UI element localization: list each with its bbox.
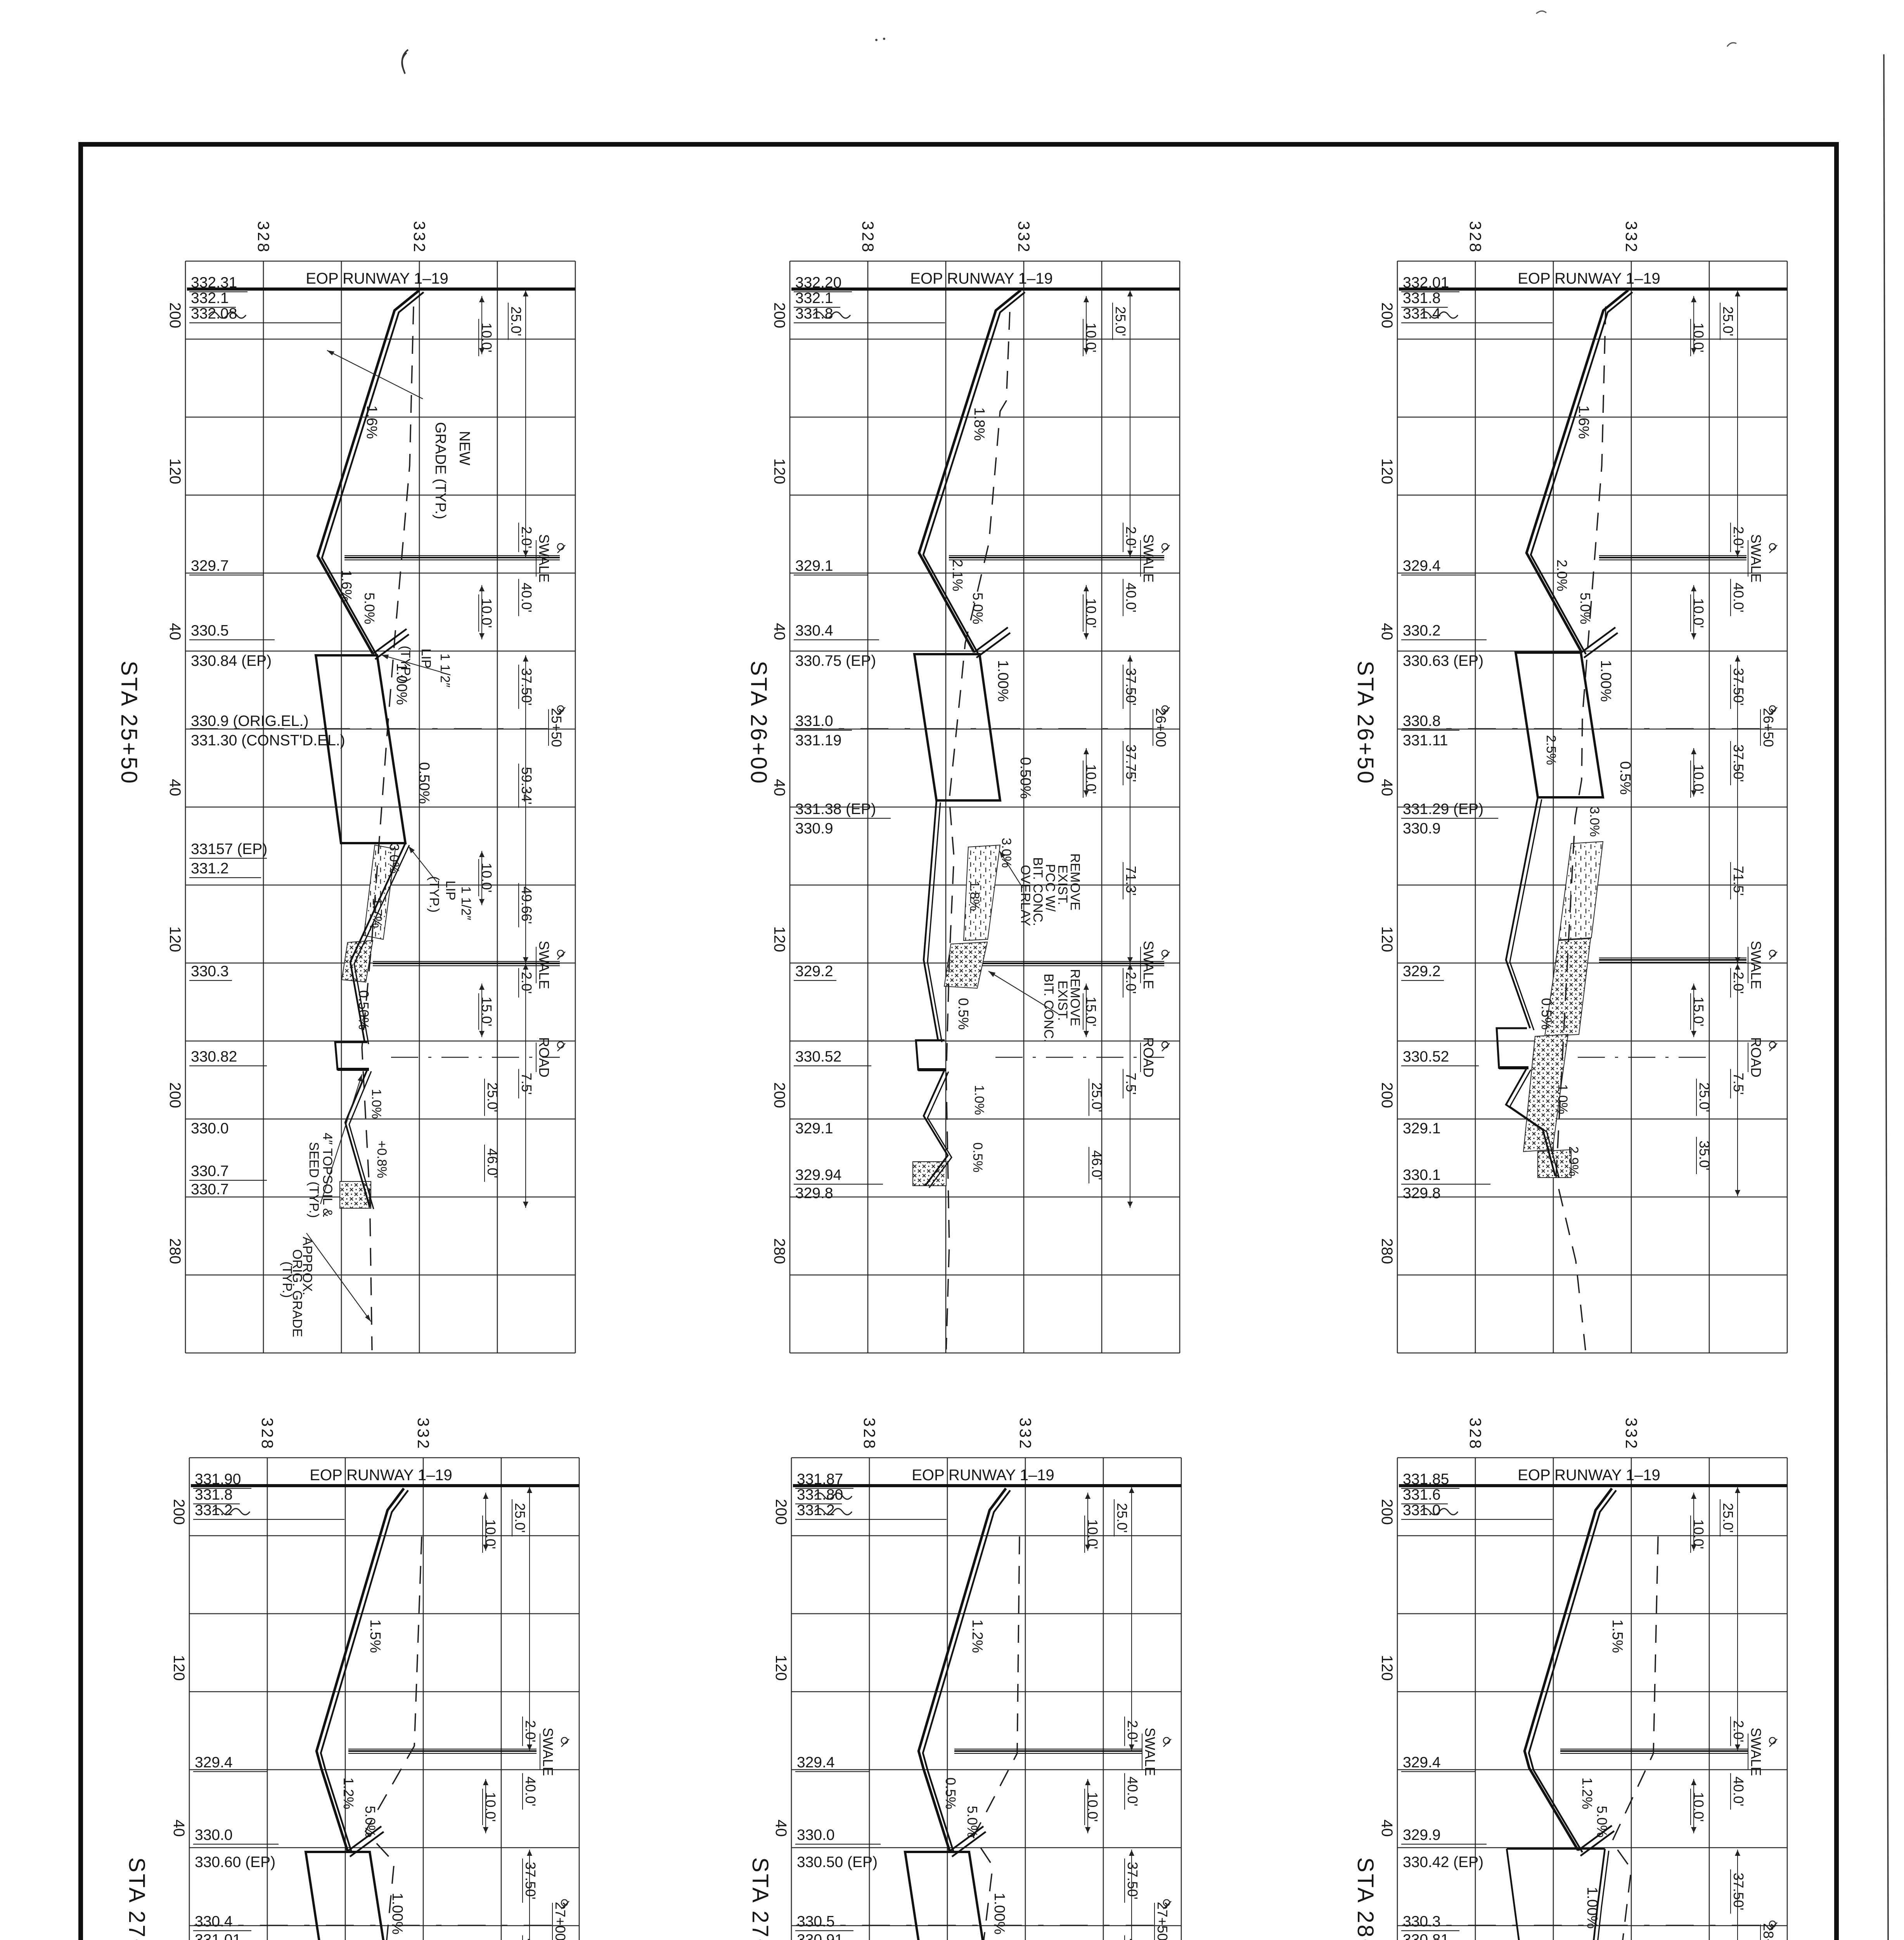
svg-text:330.7: 330.7 bbox=[191, 1181, 229, 1198]
svg-text:200: 200 bbox=[166, 302, 183, 328]
svg-text:200: 200 bbox=[771, 1082, 788, 1108]
svg-text:STA 26+50: STA 26+50 bbox=[1353, 661, 1378, 785]
svg-text:27+50: 27+50 bbox=[1155, 1902, 1170, 1940]
svg-text:331.30 (CONST'D.EL.): 331.30 (CONST'D.EL.) bbox=[191, 732, 345, 749]
svg-text:71.5': 71.5' bbox=[1731, 866, 1746, 896]
svg-text:330.50 (EP): 330.50 (EP) bbox=[797, 1854, 878, 1871]
svg-text:2.0%: 2.0% bbox=[1554, 559, 1570, 591]
svg-text:40.0': 40.0' bbox=[519, 583, 535, 613]
svg-text:46.0': 46.0' bbox=[1089, 1150, 1105, 1180]
svg-text:7.5': 7.5' bbox=[519, 1073, 535, 1095]
svg-text:0.5%: 0.5% bbox=[1539, 998, 1554, 1030]
svg-text:40: 40 bbox=[170, 1820, 187, 1837]
svg-text:2.0': 2.0' bbox=[1731, 1720, 1746, 1743]
svg-text:10.0': 10.0' bbox=[1691, 323, 1707, 353]
svg-text:25.0': 25.0' bbox=[1089, 1083, 1105, 1112]
svg-text:EOP RUNWAY 1–19: EOP RUNWAY 1–19 bbox=[1518, 1467, 1660, 1484]
svg-text:SWALE: SWALE bbox=[1141, 941, 1156, 989]
svg-text:0.5%: 0.5% bbox=[970, 1142, 985, 1173]
svg-text:5.0%: 5.0% bbox=[970, 592, 986, 624]
svg-text:330.4: 330.4 bbox=[795, 622, 833, 639]
svg-text:120: 120 bbox=[771, 458, 788, 484]
svg-text:328: 328 bbox=[860, 1417, 879, 1450]
svg-text:35.0': 35.0' bbox=[1696, 1141, 1712, 1171]
svg-text:1.7%: 1.7% bbox=[370, 898, 384, 928]
svg-text:280: 280 bbox=[166, 1238, 183, 1264]
svg-text:120: 120 bbox=[1378, 458, 1395, 484]
svg-text:332.01: 332.01 bbox=[1403, 274, 1449, 291]
svg-text:332: 332 bbox=[1622, 221, 1641, 254]
svg-text:331.90: 331.90 bbox=[195, 1471, 241, 1488]
svg-text:329.4: 329.4 bbox=[1403, 558, 1441, 574]
svg-text:EOP RUNWAY 1–19: EOP RUNWAY 1–19 bbox=[310, 1467, 452, 1484]
svg-text:40: 40 bbox=[166, 779, 183, 797]
svg-text:200: 200 bbox=[771, 302, 788, 328]
svg-text:25.0': 25.0' bbox=[1113, 307, 1129, 336]
svg-text:STA 25+50: STA 25+50 bbox=[116, 661, 142, 785]
svg-text:37.50': 37.50' bbox=[1731, 1873, 1746, 1911]
svg-text:25.0': 25.0' bbox=[1114, 1503, 1130, 1533]
svg-text:33157 (EP): 33157 (EP) bbox=[191, 841, 267, 857]
svg-text:330.3: 330.3 bbox=[1403, 1913, 1441, 1930]
svg-text:SWALE: SWALE bbox=[540, 1728, 556, 1776]
svg-text:EOP RUNWAY 1–19: EOP RUNWAY 1–19 bbox=[1518, 270, 1660, 287]
svg-text:120: 120 bbox=[771, 926, 788, 952]
svg-text:15.0': 15.0' bbox=[479, 997, 495, 1027]
svg-text:3.0%: 3.0% bbox=[387, 844, 402, 874]
svg-text:329.4: 329.4 bbox=[1403, 1754, 1441, 1771]
svg-text:200: 200 bbox=[1378, 1499, 1395, 1525]
svg-text:328: 328 bbox=[258, 1417, 277, 1450]
svg-text:(TYP.): (TYP.) bbox=[398, 646, 413, 682]
svg-text:331.38 (EP): 331.38 (EP) bbox=[795, 801, 876, 818]
svg-text:37.50': 37.50' bbox=[523, 1862, 538, 1900]
svg-text:120: 120 bbox=[1378, 926, 1395, 952]
svg-text:331.8: 331.8 bbox=[1403, 290, 1441, 307]
svg-text:329.1: 329.1 bbox=[795, 558, 833, 574]
svg-text:332.08: 332.08 bbox=[191, 305, 237, 322]
svg-text:37.50': 37.50' bbox=[1123, 668, 1139, 706]
svg-text:37.50': 37.50' bbox=[1731, 745, 1746, 782]
svg-text:2.0': 2.0' bbox=[1731, 972, 1746, 994]
svg-text:40.0': 40.0' bbox=[1123, 583, 1139, 613]
svg-text:1.00%: 1.00% bbox=[1584, 1887, 1600, 1929]
svg-text:10.0': 10.0' bbox=[1085, 1519, 1101, 1549]
svg-text:1.00%: 1.00% bbox=[389, 1893, 405, 1935]
svg-text:330.3: 330.3 bbox=[191, 963, 229, 980]
svg-text:10.0': 10.0' bbox=[1691, 1519, 1707, 1549]
svg-text:EXIST.: EXIST. bbox=[1055, 980, 1070, 1021]
svg-text:330.63 (EP): 330.63 (EP) bbox=[1403, 653, 1483, 669]
svg-text:STA 27+00: STA 27+00 bbox=[124, 1857, 149, 1940]
svg-text:1.6%: 1.6% bbox=[339, 570, 355, 602]
svg-text:40: 40 bbox=[771, 779, 788, 797]
svg-text:332: 332 bbox=[1015, 221, 1033, 254]
svg-text:EOP RUNWAY 1–19: EOP RUNWAY 1–19 bbox=[306, 270, 448, 287]
svg-text:40.05': 40.05' bbox=[523, 1939, 538, 1940]
svg-text:331.0: 331.0 bbox=[795, 713, 833, 729]
svg-text:332.1: 332.1 bbox=[795, 290, 833, 307]
svg-text:5.0%: 5.0% bbox=[362, 1806, 378, 1838]
svg-text:330.0: 330.0 bbox=[191, 1120, 229, 1137]
svg-text:331.8: 331.8 bbox=[195, 1486, 233, 1503]
svg-text:330.91: 330.91 bbox=[797, 1931, 843, 1940]
svg-text:330.81: 330.81 bbox=[1403, 1931, 1449, 1940]
svg-text:10.0': 10.0' bbox=[1085, 1792, 1101, 1822]
svg-text:329.4: 329.4 bbox=[195, 1754, 233, 1771]
svg-text:328: 328 bbox=[1466, 1417, 1485, 1450]
svg-text:10.0': 10.0' bbox=[1083, 323, 1099, 353]
svg-text:49.66': 49.66' bbox=[519, 887, 535, 924]
svg-text:25.0': 25.0' bbox=[512, 1503, 528, 1533]
svg-text:41.79': 41.79' bbox=[1125, 1939, 1141, 1940]
svg-text:ROAD: ROAD bbox=[1748, 1037, 1764, 1077]
svg-text:0.50%: 0.50% bbox=[1017, 757, 1033, 799]
svg-text:329.2: 329.2 bbox=[1403, 963, 1441, 980]
svg-text:37.50': 37.50' bbox=[1731, 668, 1746, 706]
svg-text:LIP: LIP bbox=[419, 648, 433, 668]
svg-text:1.2%: 1.2% bbox=[341, 1777, 357, 1809]
svg-text:2.0': 2.0' bbox=[1123, 527, 1139, 549]
svg-text:STA 27+50: STA 27+50 bbox=[748, 1857, 773, 1940]
svg-text:1.00%: 1.00% bbox=[995, 660, 1011, 702]
svg-text:1.0%: 1.0% bbox=[1555, 1084, 1570, 1114]
svg-text:332.20: 332.20 bbox=[795, 274, 841, 291]
svg-text:STA 28+00: STA 28+00 bbox=[1353, 1857, 1378, 1940]
svg-text:1.2%: 1.2% bbox=[969, 1620, 985, 1653]
svg-text:1.2%: 1.2% bbox=[1579, 1777, 1595, 1809]
svg-text:329.8: 329.8 bbox=[1403, 1185, 1441, 1202]
svg-text:25.0': 25.0' bbox=[1696, 1083, 1712, 1112]
svg-text:330.1: 330.1 bbox=[1403, 1167, 1441, 1183]
svg-text:332: 332 bbox=[1622, 1417, 1641, 1450]
svg-text:40.0': 40.0' bbox=[1731, 1777, 1746, 1807]
svg-text:329.94: 329.94 bbox=[795, 1167, 841, 1183]
svg-text:330.9: 330.9 bbox=[1403, 820, 1441, 837]
svg-text:200: 200 bbox=[166, 1082, 183, 1108]
svg-text:330.84 (EP): 330.84 (EP) bbox=[191, 653, 272, 669]
svg-text:0.5%: 0.5% bbox=[1617, 761, 1633, 795]
svg-text:10.0': 10.0' bbox=[1691, 1792, 1707, 1822]
svg-text:0.5%: 0.5% bbox=[955, 998, 971, 1030]
svg-text:329.2: 329.2 bbox=[795, 963, 833, 980]
svg-text:1.6%: 1.6% bbox=[1575, 405, 1592, 439]
svg-text:200: 200 bbox=[772, 1499, 789, 1525]
svg-text:25.0': 25.0' bbox=[485, 1083, 500, 1112]
svg-text:15.0': 15.0' bbox=[1691, 997, 1707, 1027]
svg-text:329.1: 329.1 bbox=[795, 1120, 833, 1137]
svg-text:40.0': 40.0' bbox=[523, 1777, 538, 1807]
svg-text:10.0': 10.0' bbox=[1691, 764, 1707, 794]
svg-text:2.0': 2.0' bbox=[1123, 972, 1139, 994]
svg-text:40: 40 bbox=[166, 623, 183, 641]
svg-text:2.0': 2.0' bbox=[1731, 527, 1746, 549]
svg-text:330.9 (ORIG.EL.): 330.9 (ORIG.EL.) bbox=[191, 713, 308, 729]
svg-text:328: 328 bbox=[254, 221, 273, 254]
svg-text:1.00%: 1.00% bbox=[1598, 660, 1614, 702]
svg-text:GRADE (TYP.): GRADE (TYP.) bbox=[432, 422, 448, 520]
svg-text:25.0': 25.0' bbox=[1720, 307, 1736, 336]
svg-text:330.52: 330.52 bbox=[795, 1048, 841, 1065]
svg-text:10.0': 10.0' bbox=[483, 1792, 499, 1822]
svg-text:EOP RUNWAY 1–19: EOP RUNWAY 1–19 bbox=[910, 270, 1053, 287]
svg-text:332: 332 bbox=[414, 1417, 433, 1450]
svg-text:1.0%: 1.0% bbox=[369, 1089, 384, 1119]
svg-text:71.3': 71.3' bbox=[1123, 866, 1139, 896]
svg-text:0.50%: 0.50% bbox=[416, 762, 432, 804]
svg-text:10.0': 10.0' bbox=[479, 598, 495, 628]
svg-text:2.0': 2.0' bbox=[523, 1720, 538, 1743]
svg-text:NEW: NEW bbox=[456, 431, 473, 466]
svg-text:5.0%: 5.0% bbox=[1577, 592, 1593, 624]
svg-text:3.0%: 3.0% bbox=[1587, 807, 1602, 837]
svg-text:330.0: 330.0 bbox=[797, 1827, 835, 1843]
svg-text:27+00: 27+00 bbox=[552, 1902, 568, 1940]
svg-text:25.0': 25.0' bbox=[508, 307, 524, 336]
svg-text:1 1/2″: 1 1/2″ bbox=[459, 886, 473, 920]
svg-text:330.82: 330.82 bbox=[191, 1048, 237, 1065]
svg-text:332.31: 332.31 bbox=[191, 274, 237, 291]
svg-text:40: 40 bbox=[772, 1820, 789, 1837]
svg-text:SWALE: SWALE bbox=[536, 941, 552, 989]
svg-text:200: 200 bbox=[1378, 302, 1395, 328]
svg-text:15.0': 15.0' bbox=[1083, 997, 1099, 1027]
svg-text:7.5': 7.5' bbox=[1731, 1073, 1746, 1095]
svg-text:2.5%: 2.5% bbox=[1544, 735, 1558, 765]
svg-text:120: 120 bbox=[166, 926, 183, 952]
svg-text:(TYP.): (TYP.) bbox=[280, 1261, 294, 1298]
svg-text:2.9%: 2.9% bbox=[1566, 1146, 1581, 1176]
svg-text:328: 328 bbox=[1466, 221, 1485, 254]
svg-text:4″ TOPSOIL &: 4″ TOPSOIL & bbox=[320, 1133, 335, 1217]
svg-text:330.42 (EP): 330.42 (EP) bbox=[1403, 1854, 1483, 1871]
svg-text:329.9: 329.9 bbox=[1403, 1827, 1441, 1843]
svg-text:40.0': 40.0' bbox=[1125, 1777, 1141, 1807]
svg-text:10.0': 10.0' bbox=[1691, 598, 1707, 628]
svg-text:SWALE: SWALE bbox=[1748, 941, 1764, 989]
svg-text:120: 120 bbox=[772, 1655, 789, 1681]
svg-text:LIP: LIP bbox=[443, 880, 458, 900]
svg-text:2.0': 2.0' bbox=[519, 972, 535, 994]
svg-text:37.50': 37.50' bbox=[1125, 1862, 1141, 1900]
svg-text:120: 120 bbox=[170, 1655, 187, 1681]
svg-text:1 1/2″: 1 1/2″ bbox=[438, 653, 452, 688]
svg-text:EOP RUNWAY 1–19: EOP RUNWAY 1–19 bbox=[912, 1467, 1054, 1484]
svg-text:331.11: 331.11 bbox=[1403, 732, 1448, 749]
svg-text:+0.8%: +0.8% bbox=[374, 1140, 389, 1178]
svg-text:200: 200 bbox=[1378, 1082, 1395, 1108]
svg-text:331.2: 331.2 bbox=[191, 860, 229, 877]
svg-text:330.9: 330.9 bbox=[795, 820, 833, 837]
svg-text:40: 40 bbox=[1378, 1820, 1395, 1837]
svg-text:40: 40 bbox=[1378, 779, 1395, 797]
svg-text:25.0': 25.0' bbox=[1720, 1503, 1736, 1533]
svg-text:OVERLAY: OVERLAY bbox=[1018, 865, 1033, 926]
svg-text:1.0%: 1.0% bbox=[972, 1085, 987, 1115]
svg-text:59.34': 59.34' bbox=[519, 767, 535, 805]
svg-text:2.0': 2.0' bbox=[1125, 1720, 1141, 1743]
svg-text:331.6: 331.6 bbox=[1403, 1486, 1441, 1503]
svg-text:SWALE: SWALE bbox=[1748, 534, 1764, 583]
svg-text:331.19: 331.19 bbox=[795, 732, 841, 749]
svg-text:329.8: 329.8 bbox=[795, 1185, 833, 1202]
svg-text:(TYP.): (TYP.) bbox=[427, 876, 441, 913]
svg-text:329.7: 329.7 bbox=[191, 558, 229, 574]
svg-text:330.4: 330.4 bbox=[195, 1913, 233, 1930]
svg-text:330.0: 330.0 bbox=[195, 1827, 233, 1843]
svg-text:1.6%: 1.6% bbox=[363, 405, 380, 439]
svg-text:1.5%: 1.5% bbox=[367, 1620, 383, 1653]
svg-text:2.1%: 2.1% bbox=[950, 559, 966, 591]
svg-text:1.00%: 1.00% bbox=[991, 1893, 1007, 1935]
svg-text:200: 200 bbox=[170, 1499, 187, 1525]
svg-text:331.80: 331.80 bbox=[797, 1486, 843, 1503]
svg-text:40: 40 bbox=[1378, 623, 1395, 641]
svg-text:26+50: 26+50 bbox=[1760, 708, 1776, 747]
svg-text:330.52: 330.52 bbox=[1403, 1048, 1449, 1065]
svg-text:120: 120 bbox=[166, 458, 183, 484]
svg-text:10.0': 10.0' bbox=[1083, 598, 1099, 628]
svg-text:SEED (TYP.): SEED (TYP.) bbox=[306, 1142, 321, 1218]
svg-text:332: 332 bbox=[1016, 1417, 1035, 1450]
svg-text:120: 120 bbox=[1378, 1655, 1395, 1681]
svg-text:330.8: 330.8 bbox=[1403, 713, 1441, 729]
svg-text:328: 328 bbox=[859, 221, 877, 254]
svg-text:331.87: 331.87 bbox=[797, 1471, 843, 1488]
svg-text:1.5%: 1.5% bbox=[1609, 1620, 1625, 1653]
svg-text:332: 332 bbox=[410, 221, 429, 254]
svg-text:330.5: 330.5 bbox=[191, 622, 229, 639]
svg-text:330.5: 330.5 bbox=[797, 1913, 835, 1930]
svg-text:0.50%: 0.50% bbox=[356, 990, 372, 1030]
svg-text:280: 280 bbox=[771, 1238, 788, 1264]
svg-text:STA 26+00: STA 26+00 bbox=[746, 661, 771, 785]
svg-text:330.75 (EP): 330.75 (EP) bbox=[795, 653, 876, 669]
svg-text:46.0': 46.0' bbox=[485, 1148, 500, 1178]
svg-text:37.50': 37.50' bbox=[519, 668, 535, 706]
svg-text:331.01: 331.01 bbox=[195, 1931, 241, 1940]
svg-text:37.75': 37.75' bbox=[1123, 745, 1139, 782]
svg-text:2.0': 2.0' bbox=[519, 527, 535, 549]
svg-text:5.0%: 5.0% bbox=[1594, 1806, 1610, 1838]
svg-text:0.5%: 0.5% bbox=[943, 1777, 959, 1809]
svg-text:40.0': 40.0' bbox=[1731, 583, 1746, 613]
svg-text:7.5': 7.5' bbox=[1123, 1073, 1139, 1095]
svg-text:10.0': 10.0' bbox=[479, 863, 495, 893]
svg-text:330.60 (EP): 330.60 (EP) bbox=[195, 1854, 275, 1871]
svg-text:330.2: 330.2 bbox=[1403, 622, 1441, 639]
svg-text:SWALE: SWALE bbox=[1748, 1728, 1764, 1776]
svg-text:1.8%: 1.8% bbox=[967, 881, 982, 911]
svg-text:331.29 (EP): 331.29 (EP) bbox=[1403, 801, 1483, 818]
svg-text:329.4: 329.4 bbox=[797, 1754, 835, 1771]
svg-text:26+00: 26+00 bbox=[1153, 708, 1169, 747]
svg-text:332.1: 332.1 bbox=[191, 290, 229, 307]
svg-text:5.0%: 5.0% bbox=[964, 1806, 980, 1838]
svg-text:5.0%: 5.0% bbox=[362, 592, 377, 624]
svg-text:10.0': 10.0' bbox=[483, 1519, 499, 1549]
svg-text:329.1: 329.1 bbox=[1403, 1120, 1441, 1137]
svg-text:25+50: 25+50 bbox=[549, 708, 564, 747]
svg-text:280: 280 bbox=[1378, 1238, 1395, 1264]
svg-text:40: 40 bbox=[771, 623, 788, 641]
svg-text:10.0': 10.0' bbox=[479, 323, 495, 353]
svg-text:331.85: 331.85 bbox=[1403, 1471, 1449, 1488]
svg-text:10.0': 10.0' bbox=[1083, 764, 1099, 794]
svg-text:330.7: 330.7 bbox=[191, 1163, 229, 1180]
svg-text:SWALE: SWALE bbox=[1142, 1728, 1158, 1776]
svg-text:1.8%: 1.8% bbox=[971, 407, 987, 441]
